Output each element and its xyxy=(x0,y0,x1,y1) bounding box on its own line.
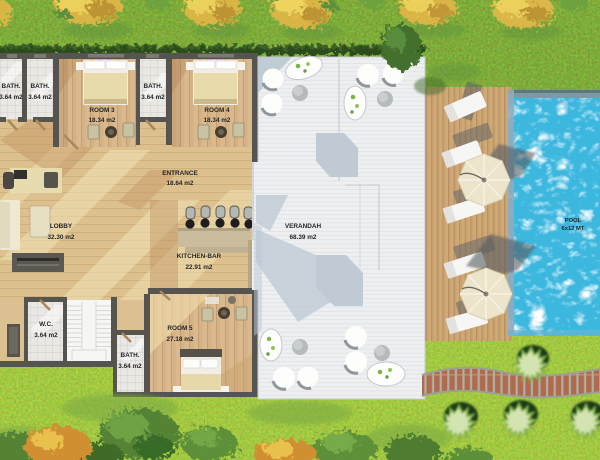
svg-text:LOBBY: LOBBY xyxy=(50,223,73,230)
svg-text:27.18 m2: 27.18 m2 xyxy=(166,336,193,343)
svg-text:BATH.: BATH. xyxy=(30,83,49,90)
svg-text:ROOM 3: ROOM 3 xyxy=(89,107,115,114)
svg-text:ENTRANCE: ENTRANCE xyxy=(162,170,198,177)
svg-text:3.64 m2: 3.64 m2 xyxy=(141,94,165,101)
svg-text:VERANDAH: VERANDAH xyxy=(285,223,322,230)
svg-text:3.64 m2: 3.64 m2 xyxy=(28,94,52,101)
svg-text:68.39 m2: 68.39 m2 xyxy=(289,234,316,241)
svg-text:POOL: POOL xyxy=(565,218,582,224)
svg-text:3.64 m2: 3.64 m2 xyxy=(0,94,23,101)
svg-text:BATH.: BATH. xyxy=(120,352,139,359)
svg-text:KITCHEN-BAR: KITCHEN-BAR xyxy=(177,253,222,260)
svg-text:22.91 m2: 22.91 m2 xyxy=(185,264,212,271)
svg-text:ROOM 4: ROOM 4 xyxy=(204,107,230,114)
svg-text:W.C.: W.C. xyxy=(39,321,53,328)
svg-text:3.64 m2: 3.64 m2 xyxy=(118,363,142,370)
svg-text:BATH.: BATH. xyxy=(1,83,20,90)
svg-text:32.30 m2: 32.30 m2 xyxy=(47,234,74,241)
svg-text:18.34 m2: 18.34 m2 xyxy=(88,117,115,124)
svg-text:18.64 m2: 18.64 m2 xyxy=(166,180,193,187)
svg-text:18.34 m2: 18.34 m2 xyxy=(203,117,230,124)
svg-text:BATH.: BATH. xyxy=(143,83,162,90)
svg-text:ROOM 5: ROOM 5 xyxy=(167,325,193,332)
svg-text:3.64 m2: 3.64 m2 xyxy=(34,332,58,339)
svg-text:6x12 MT: 6x12 MT xyxy=(562,226,585,232)
